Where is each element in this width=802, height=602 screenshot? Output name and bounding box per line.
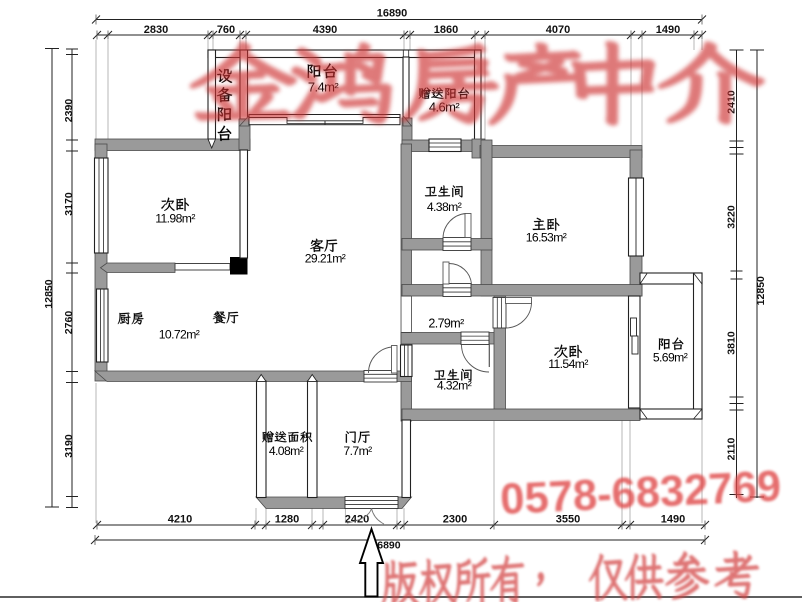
- svg-text:2760: 2760: [63, 311, 75, 335]
- svg-text:29.21m²: 29.21m²: [305, 252, 346, 266]
- svg-text:2390: 2390: [63, 99, 75, 123]
- svg-text:11.98m²: 11.98m²: [155, 212, 195, 226]
- svg-text:2300: 2300: [443, 514, 467, 526]
- svg-text:3170: 3170: [63, 192, 75, 216]
- svg-text:12850: 12850: [755, 276, 767, 305]
- svg-text:16890: 16890: [377, 8, 408, 20]
- svg-text:16.53m²: 16.53m²: [526, 231, 567, 245]
- svg-text:3190: 3190: [63, 434, 75, 458]
- svg-text:10.72m²: 10.72m²: [159, 328, 200, 342]
- svg-text:11.54m²: 11.54m²: [548, 357, 588, 371]
- svg-text:1490: 1490: [656, 24, 680, 36]
- svg-text:2110: 2110: [726, 437, 738, 460]
- svg-text:1860: 1860: [434, 24, 458, 36]
- svg-text:2.79m²: 2.79m²: [428, 317, 464, 331]
- svg-text:3220: 3220: [726, 205, 738, 229]
- svg-text:4210: 4210: [168, 514, 192, 526]
- svg-text:4390: 4390: [313, 24, 337, 36]
- svg-text:2830: 2830: [144, 24, 168, 36]
- svg-text:4.32m²: 4.32m²: [437, 379, 472, 393]
- svg-text:12850: 12850: [43, 279, 55, 308]
- svg-text:7.7m²: 7.7m²: [343, 444, 372, 458]
- svg-text:2420: 2420: [345, 514, 369, 526]
- svg-text:4070: 4070: [546, 24, 570, 36]
- svg-text:3810: 3810: [726, 331, 738, 355]
- svg-text:4.08m²: 4.08m²: [269, 444, 304, 458]
- svg-text:1280: 1280: [275, 514, 299, 526]
- svg-text:760: 760: [217, 24, 235, 36]
- svg-text:5.69m²: 5.69m²: [653, 351, 688, 365]
- svg-text:4.38m²: 4.38m²: [427, 200, 462, 214]
